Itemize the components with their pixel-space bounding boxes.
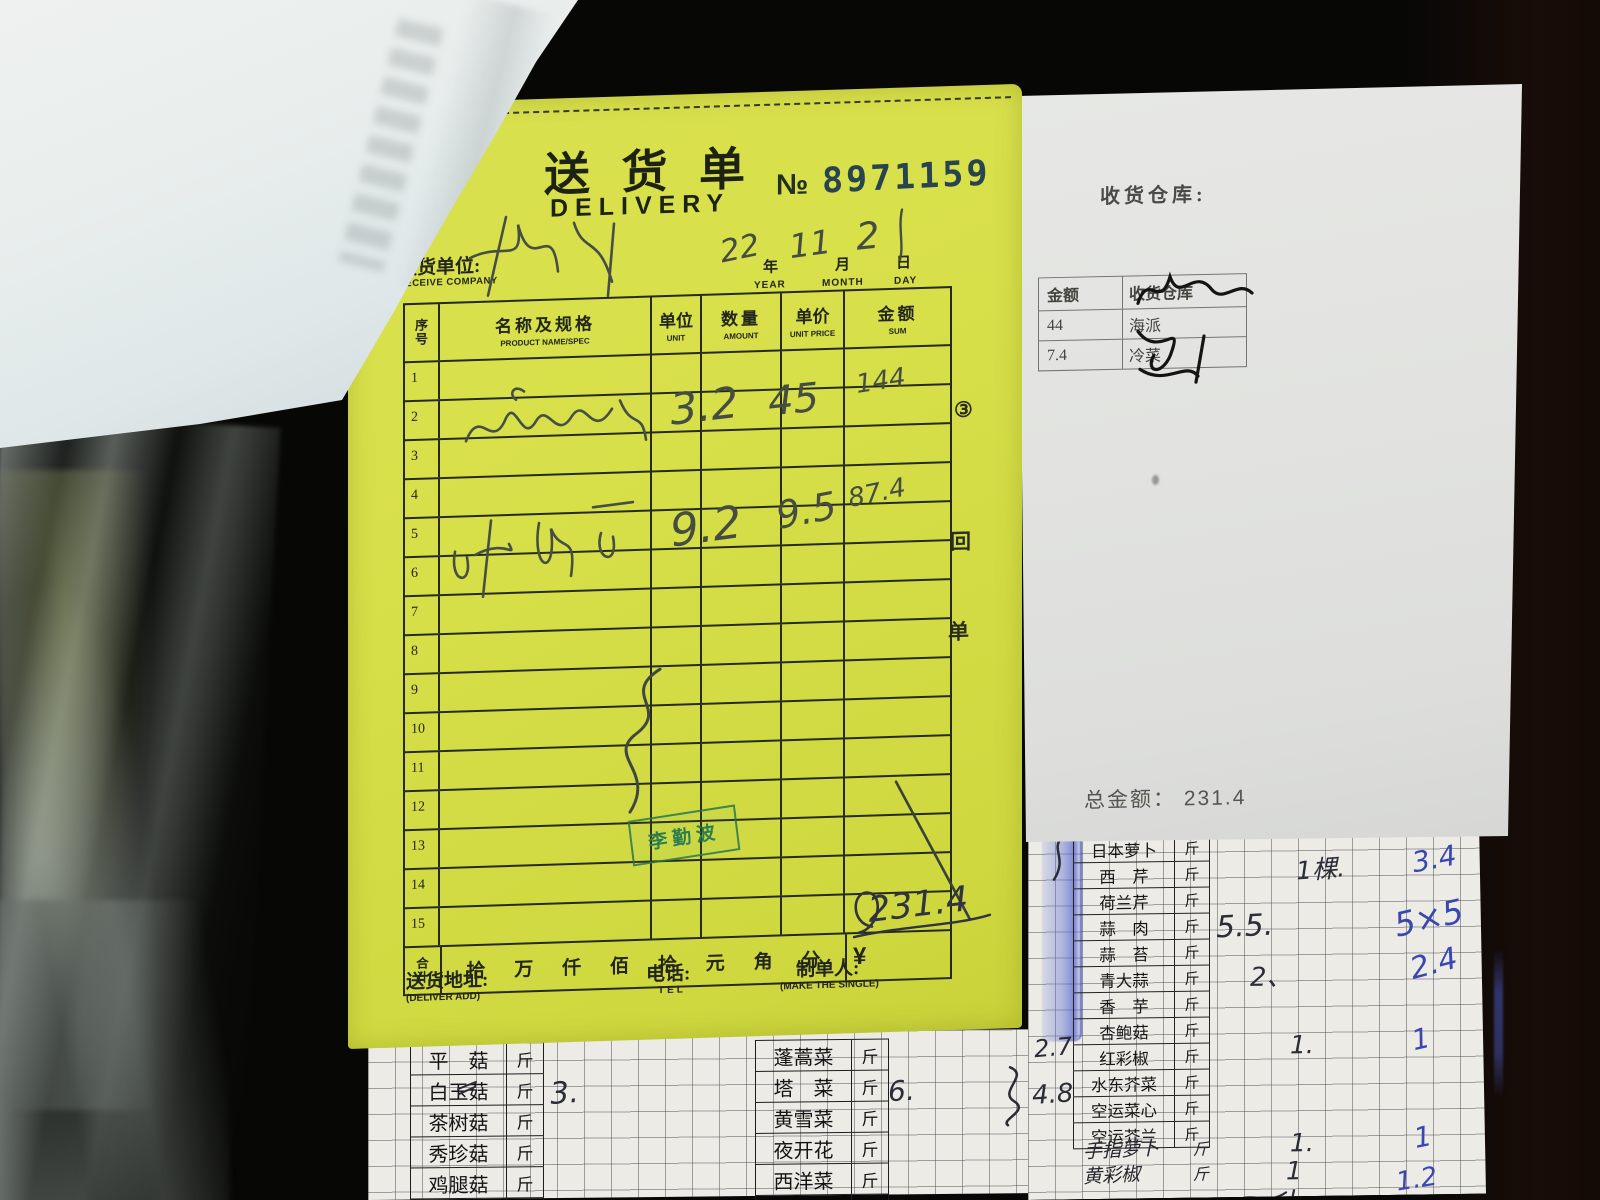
vegetable-unit: 斤	[1175, 913, 1210, 938]
row-number: 5	[405, 519, 418, 543]
slip-no-value: 8971159	[822, 153, 991, 201]
header-unit-price: 单价 UNIT PRICE	[782, 291, 845, 349]
hw-hongcaijiao-left: 2.7	[1033, 1032, 1073, 1063]
vegetable-name: 茶树菇	[410, 1106, 507, 1137]
cell-amount	[702, 897, 782, 937]
hw-day: 2	[855, 214, 881, 259]
handwritten-product-1	[460, 378, 650, 468]
vegetable-unit: 斤	[1175, 939, 1210, 964]
row-number: 3	[405, 441, 418, 465]
hw-month: 11	[787, 222, 833, 266]
vegetable-row: 青大蒜 斤	[1073, 965, 1210, 993]
total-amount-value: 231.4	[1184, 786, 1247, 810]
cell-amount	[702, 663, 782, 703]
cell-product	[440, 901, 652, 945]
vegetable-row: 杏鲍菇 斤	[1073, 1017, 1210, 1045]
vegetable-row: 蓬蒿菜 斤	[755, 1040, 889, 1072]
copy-char-dan: 单	[948, 615, 969, 646]
vegetable-name: 蒜 肉	[1073, 914, 1175, 940]
hw-total-underline	[848, 883, 998, 944]
handwritten-qty-baiyugu: 3.	[549, 1075, 580, 1112]
cell-amount	[702, 741, 782, 781]
row-number: 4	[405, 480, 418, 504]
vegetable-row: 秀珍菇 斤	[410, 1136, 544, 1168]
blue-ink-smear	[1494, 948, 1503, 1098]
vegetable-unit: 斤	[1175, 965, 1210, 990]
photo-scene: 平 菇 斤 白玉菇 斤 茶树菇 斤 秀珍菇 斤	[0, 0, 1600, 1200]
plastic-wrap-lower	[0, 900, 230, 1200]
vegetable-name: 塔 菜	[755, 1071, 852, 1102]
cell-price	[782, 817, 845, 856]
cell-price	[782, 583, 845, 622]
warehouse-amount: 7.4	[1039, 340, 1123, 371]
header-amount: 数量 AMOUNT	[702, 293, 782, 352]
tel-label-en: TEL	[658, 984, 686, 996]
header-sum: 金额 SUM	[845, 288, 950, 347]
hw-day-stroke	[888, 205, 914, 264]
hw-hongcaijiao-qty: 1.	[1290, 1030, 1314, 1059]
row-number: 6	[405, 558, 418, 582]
vegetable-table-mushrooms: 平 菇 斤 白玉菇 斤 茶树菇 斤 秀珍菇 斤	[410, 1042, 544, 1200]
vegetable-unit: 斤	[1175, 991, 1210, 1016]
cell-product	[440, 862, 652, 906]
hw-qingdasuan-sum: 2.4	[1406, 941, 1461, 987]
cell-product	[440, 823, 652, 867]
cell-unit	[652, 588, 702, 627]
cell-unit	[652, 861, 702, 900]
cell-price	[782, 622, 845, 661]
hw-suanrou-sum: 5×5	[1391, 891, 1467, 944]
row-number: 7	[405, 597, 418, 621]
vegetable-row: 西洋菜 斤	[755, 1164, 889, 1196]
header-unit: 单位 UNIT	[652, 296, 702, 354]
month-label-en: MONTH	[822, 277, 864, 289]
vegetable-unit: 斤	[507, 1105, 544, 1135]
vegetable-row: 鸡腿菇 斤	[410, 1167, 544, 1199]
cell-sum	[845, 697, 950, 737]
vegetable-name: 空运菜心	[1073, 1096, 1175, 1122]
vegetable-name: 夜开花	[755, 1133, 852, 1164]
scribble-over-name	[456, 1077, 480, 1099]
hw-year: 22	[717, 227, 762, 270]
vegetable-name: 西洋菜	[755, 1164, 852, 1195]
hw-shouzhi-sum: 1	[1411, 1119, 1434, 1155]
vegetable-table-right: 日本萝卜 斤 西 芹 斤 荷兰芹 斤 蒜 肉 斤	[1073, 834, 1210, 1149]
cell-price	[782, 856, 845, 895]
vegetable-unit: 斤	[852, 1164, 889, 1194]
cell-price	[782, 661, 845, 700]
hw-xiqin-sum: 3.4	[1409, 838, 1459, 879]
hw-huangcaijiao-qty: 1	[1286, 1156, 1302, 1185]
vegetable-row: 夜开花 斤	[755, 1133, 889, 1165]
handwritten-mark-squiggle	[990, 1063, 1030, 1127]
vegetable-row: 蒜 苔 斤	[1073, 939, 1210, 967]
cell-sum	[845, 424, 950, 464]
hw-entry2-qty: 9.2	[667, 495, 744, 557]
cell-price	[782, 700, 845, 739]
tel-label-cn: 电话:	[646, 958, 690, 986]
vegetable-unit: 斤	[1175, 1069, 1210, 1094]
vegetable-unit: 斤	[1175, 887, 1210, 912]
vegetable-unit: 斤	[1175, 1043, 1210, 1068]
vegetable-row: 红彩椒 斤	[1073, 1043, 1210, 1071]
vegetable-row: 平 菇 斤	[410, 1043, 544, 1075]
vegetable-unit: 斤	[1175, 1095, 1210, 1120]
vegetable-unit: 斤	[507, 1167, 544, 1197]
vegetable-unit: 斤	[852, 1071, 889, 1101]
vegetable-name: 平 菇	[410, 1044, 507, 1075]
row-number: 12	[405, 792, 425, 817]
hw-xiqin-qty: 1棵.	[1295, 848, 1346, 887]
vegetable-unit: 斤	[1175, 861, 1210, 886]
digit-unit: 元	[706, 948, 725, 976]
handwritten-qty-tacai: 6.	[887, 1074, 915, 1109]
digit-unit: 仟	[562, 952, 581, 980]
cell-price	[782, 778, 845, 817]
copy-char-hui: 回	[950, 525, 971, 556]
vegetable-unit: 斤	[507, 1043, 544, 1073]
vegetable-unit: 斤	[507, 1136, 544, 1166]
row-number: 15	[405, 909, 425, 934]
vegetable-row: 荷兰芹 斤	[1073, 887, 1210, 915]
vegetable-row: 香 芋 斤	[1073, 991, 1210, 1019]
signature-scrawl-1	[1130, 259, 1260, 320]
row-number: 11	[405, 753, 424, 778]
cell-unit	[652, 432, 702, 471]
cell-sum	[845, 541, 950, 581]
vegetable-name: 青大蒜	[1073, 966, 1175, 992]
warehouse-note-paper: 收货仓库: 金额 收货仓库 44 海派 7.4	[1012, 82, 1526, 846]
vegetable-row: 蒜 肉 斤	[1073, 913, 1210, 941]
handwritten-check-squiggle	[598, 662, 693, 820]
partial-bottom-scrawl	[1228, 1184, 1308, 1200]
warehouse-amount: 44	[1039, 310, 1123, 341]
handwritten-vegetable-name: 黄彩椒	[1083, 1157, 1188, 1189]
vegetable-unit: 斤	[1175, 1017, 1210, 1042]
vegetable-row: 水东芥菜 斤	[1073, 1069, 1210, 1097]
handwritten-row: 手指萝卜 斤	[1083, 1134, 1209, 1161]
vegetable-name: 荷兰芹	[1073, 888, 1175, 914]
vegetable-name: 香 芋	[1073, 992, 1175, 1018]
vegetable-row: 塔 菜 斤	[755, 1071, 889, 1103]
cell-sum	[845, 658, 950, 698]
vegetable-name: 红彩椒	[1073, 1044, 1175, 1070]
row-number: 9	[405, 675, 418, 699]
col-amount: 金额	[1039, 277, 1123, 311]
vegetable-name: 秀珍菇	[410, 1137, 507, 1168]
copy-number-mark: ③	[954, 397, 973, 423]
cell-sum	[845, 580, 950, 620]
handwritten-product-2	[443, 493, 658, 605]
vegetable-table-greens: 蓬蒿菜 斤 塔 菜 斤 黄雪菜 斤 夜开花 斤	[755, 1039, 889, 1200]
cell-amount	[702, 585, 782, 625]
cell-amount	[702, 702, 782, 742]
vegetable-name: 百 合	[755, 1195, 852, 1200]
hw-entry1-qty: 3.2	[668, 378, 740, 436]
cell-price	[782, 544, 845, 583]
year-label-en: YEAR	[754, 279, 786, 291]
vegetable-row: 百 合 斤	[755, 1195, 889, 1200]
vegetable-unit: 斤	[852, 1133, 889, 1163]
warehouse-title: 收货仓库:	[1100, 178, 1207, 209]
row-number: 13	[405, 831, 425, 856]
vegetable-unit: 斤	[507, 1074, 544, 1104]
row-number: 1	[405, 363, 418, 387]
header-index: 序 号	[405, 304, 440, 361]
cell-price	[782, 895, 845, 934]
cell-amount	[702, 546, 782, 586]
vegetable-unit: 斤	[852, 1195, 889, 1200]
paper-smudge	[1152, 475, 1159, 485]
year-label-cn: 年	[763, 255, 778, 276]
total-amount-label: 总金额：	[1084, 788, 1176, 813]
hw-entry1-price: 45	[766, 375, 820, 426]
handwritten-vegetable-unit: 斤	[1193, 1160, 1209, 1184]
day-label-en: DAY	[894, 275, 917, 287]
vegetable-row: 西 芹 斤	[1073, 861, 1210, 889]
perforation-dashed-line	[483, 96, 1011, 115]
cell-price	[782, 427, 845, 466]
cell-unit	[652, 900, 702, 939]
header-product-name: 名称及规格 PRODUCT NAME/SPEC	[440, 297, 652, 360]
vegetable-unit: 斤	[852, 1040, 889, 1070]
hw-kongyuncaixin-left: 4.8	[1031, 1078, 1074, 1111]
vegetable-name: 杏鲍菇	[1073, 1018, 1175, 1044]
hw-shouzhi-qty: 1.	[1290, 1128, 1314, 1157]
vegetable-name: 水东芥菜	[1073, 1070, 1175, 1096]
cell-sum	[845, 736, 950, 776]
row-number: 14	[405, 870, 425, 895]
handwritten-vegetable-unit: 斤	[1193, 1135, 1209, 1159]
hw-qingdasuan-qty: 2、	[1250, 956, 1293, 994]
vegetable-list-sheet-bottom: 平 菇 斤 白玉菇 斤 茶树菇 斤 秀珍菇 斤	[368, 1029, 1060, 1200]
cell-price	[782, 739, 845, 778]
cell-sum	[845, 619, 950, 659]
hw-hongcaijiao-sum: 1	[1409, 1021, 1433, 1057]
hw-huangcaijiao-sum: 1.2	[1394, 1162, 1439, 1198]
vegetable-row: 空运菜心 斤	[1073, 1095, 1210, 1123]
vegetable-list-sheet-right: 日本萝卜 斤 西 芹 斤 荷兰芹 斤 蒜 肉 斤	[1028, 822, 1486, 1200]
vegetable-name: 蒜 苔	[1073, 940, 1175, 966]
digit-unit: 万	[514, 954, 533, 982]
vegetable-name: 蓬蒿菜	[755, 1040, 852, 1071]
deliver-address-label-en: (DELIVER ADD)	[406, 991, 480, 1004]
handwritten-vegetable-rows: 手指萝卜 斤 黄彩椒 斤	[1083, 1134, 1209, 1186]
digit-unit: 角	[754, 946, 773, 974]
vegetable-unit: 斤	[852, 1102, 889, 1132]
total-amount-line: 总金额： 231.4	[1084, 781, 1246, 814]
vegetable-name: 黄雪菜	[755, 1102, 852, 1133]
cell-unit	[652, 627, 702, 666]
slip-no-label: №	[776, 169, 808, 203]
delivery-slip: 送 货 单 DELIVERY № 8971159 收货单位: RECEIVE C…	[348, 84, 1022, 1049]
vegetable-name: 鸡腿菇	[410, 1168, 507, 1199]
cell-amount	[702, 858, 782, 898]
digit-unit: 佰	[610, 951, 629, 979]
month-label-cn: 月	[835, 253, 850, 274]
handwritten-company-scrawl	[458, 191, 633, 304]
maker-label-en: (MAKE THE SINGLE)	[780, 978, 879, 992]
vegetable-name: 西 芹	[1073, 862, 1175, 888]
signature-scrawl-2	[1124, 315, 1234, 389]
hw-suanrou-qty: 5.5.	[1215, 908, 1273, 946]
deliver-address-label-cn: 送货地址:	[406, 965, 488, 995]
row-number: 8	[405, 636, 418, 660]
cell-amount	[702, 624, 782, 664]
handwritten-row: 黄彩椒 斤	[1083, 1159, 1209, 1186]
maker-label-cn: 制单人:	[796, 953, 859, 982]
vegetable-row: 黄雪菜 斤	[755, 1102, 889, 1134]
cell-amount	[702, 429, 782, 469]
row-number: 2	[405, 402, 418, 426]
row-number: 10	[405, 714, 425, 739]
vegetable-row: 茶树菇 斤	[410, 1105, 544, 1137]
